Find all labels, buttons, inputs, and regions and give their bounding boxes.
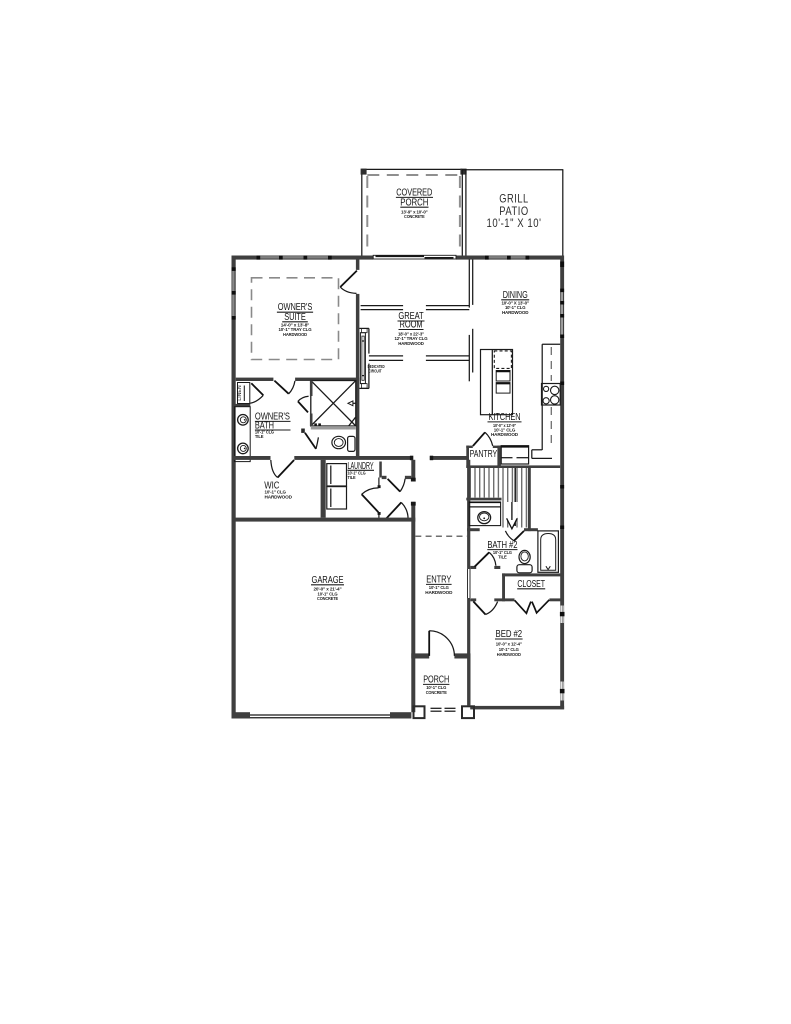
svg-text:GARAGE: GARAGE [312, 575, 344, 586]
svg-text:HARDWOOD: HARDWOOD [398, 341, 424, 346]
svg-text:CONCRETE: CONCRETE [426, 690, 447, 695]
svg-text:DINING: DINING [503, 290, 528, 301]
svg-text:10'-1" CLG: 10'-1" CLG [499, 647, 519, 652]
svg-text:LINEN: LINEN [237, 385, 243, 401]
svg-text:TILE: TILE [348, 475, 356, 480]
svg-text:HARDWOOD: HARDWOOD [491, 432, 519, 437]
svg-text:BED #2: BED #2 [496, 629, 523, 640]
svg-text:HARDWOOD: HARDWOOD [497, 652, 522, 657]
svg-text:CONCRETE: CONCRETE [404, 214, 425, 219]
svg-text:SUITE: SUITE [284, 312, 306, 323]
svg-text:HARDWOOD: HARDWOOD [265, 494, 293, 499]
svg-text:PORCH: PORCH [423, 675, 449, 686]
svg-text:TILE: TILE [498, 554, 507, 559]
svg-text:TILE: TILE [255, 434, 264, 439]
svg-text:10'-1" X 10': 10'-1" X 10' [487, 216, 542, 230]
svg-text:ENTRY: ENTRY [426, 575, 451, 586]
svg-text:HARDWOOD: HARDWOOD [425, 590, 453, 595]
svg-text:CIRCUIT: CIRCUIT [369, 369, 382, 374]
svg-text:HARDWOOD: HARDWOOD [283, 332, 308, 337]
svg-text:CLOSET: CLOSET [517, 579, 545, 590]
svg-text:PANTRY: PANTRY [470, 449, 498, 460]
svg-text:HARDWOOD: HARDWOOD [502, 310, 529, 315]
svg-text:CONCRETE: CONCRETE [317, 596, 338, 601]
svg-text:10'-0" x 12'-4": 10'-0" x 12'-4" [496, 641, 522, 646]
svg-text:KITCHEN: KITCHEN [489, 412, 521, 423]
